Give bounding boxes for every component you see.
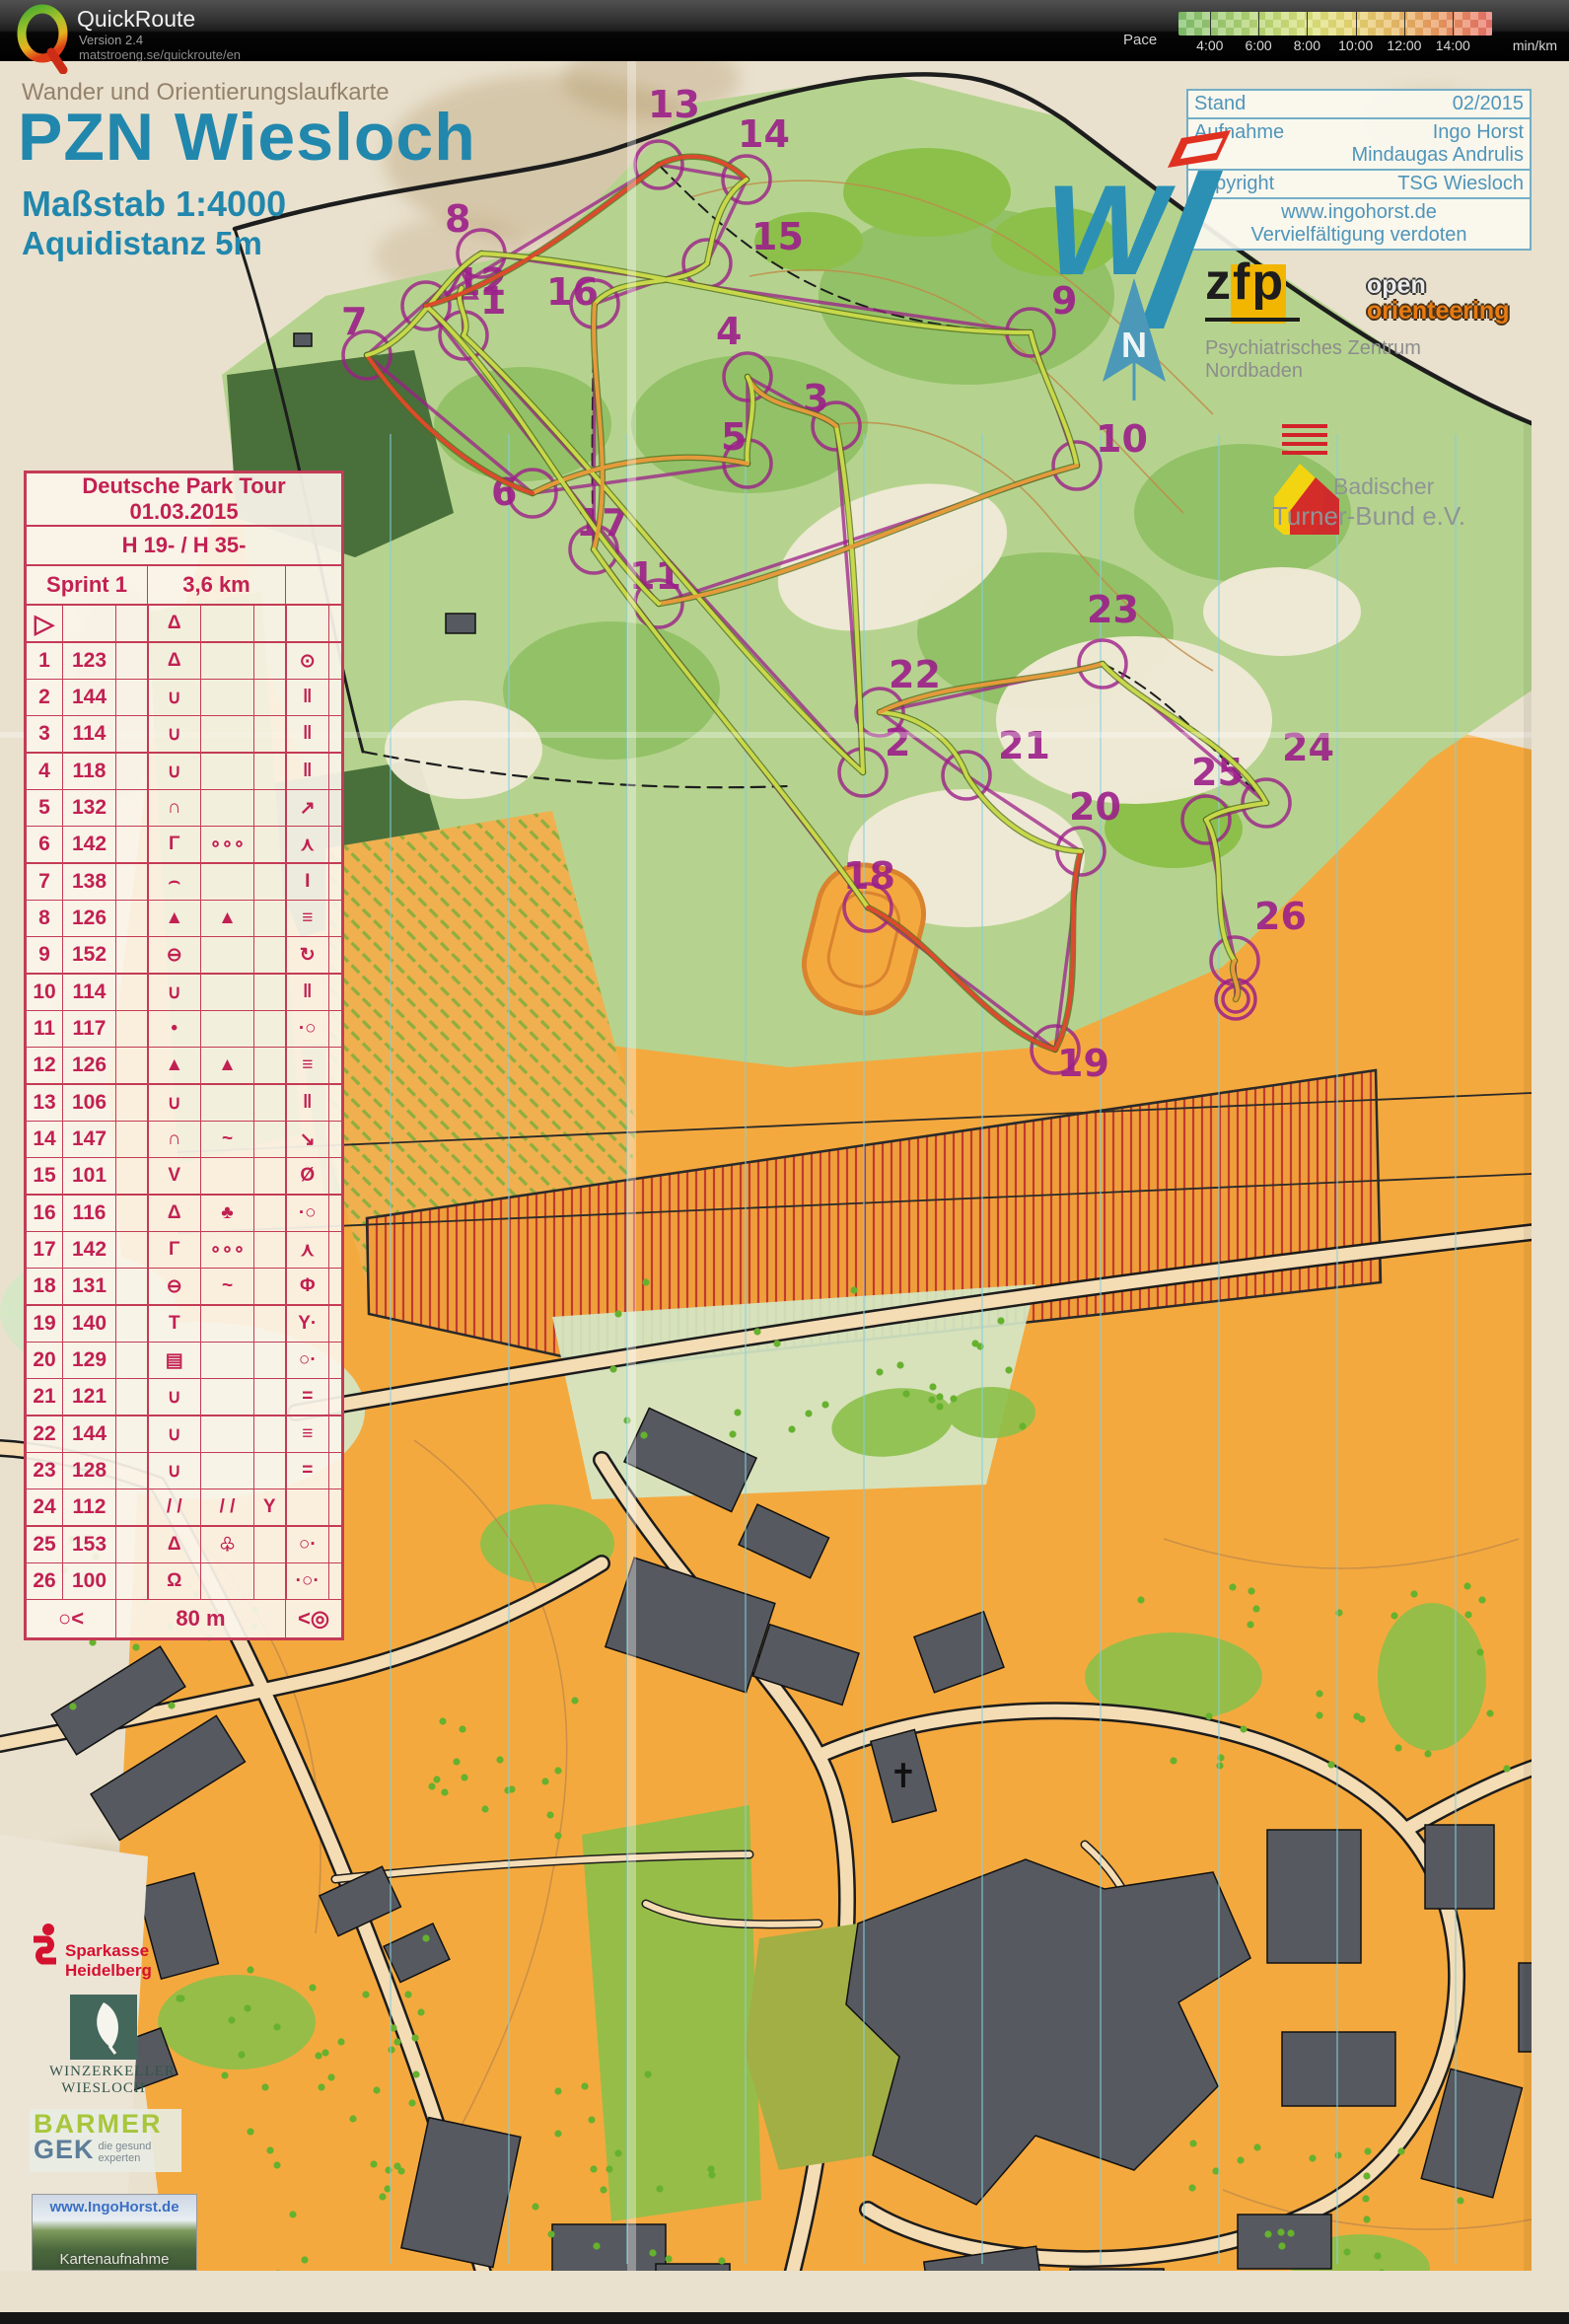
sheet-cell — [329, 901, 343, 937]
control-number-cell: 12 — [26, 1048, 63, 1085]
sheet-cell — [116, 974, 148, 1011]
control-number-cell: 20 — [26, 1343, 63, 1379]
sheet-course-length: 3,6 km — [148, 565, 286, 605]
control-code-cell: 147 — [63, 1122, 116, 1158]
symbol-f — [254, 1453, 286, 1489]
sheet-cell — [329, 1195, 343, 1232]
symbol-h: ⋏ — [286, 827, 329, 864]
symbol-e — [201, 680, 254, 716]
start-symbol: ▷ — [26, 605, 63, 642]
sheet-cell — [329, 716, 343, 754]
sheet-cell — [116, 1489, 148, 1527]
symbol-e — [201, 974, 254, 1011]
symbol-h: ○· — [286, 1343, 329, 1379]
symbol-f — [254, 753, 286, 790]
sheet-cell — [116, 1453, 148, 1489]
sheet-course-name: Sprint 1 — [26, 565, 148, 605]
control-number: 14 — [738, 112, 790, 156]
control-number: 26 — [1254, 895, 1307, 938]
symbol-e — [201, 1305, 254, 1343]
symbol-h: ·○· — [286, 1563, 329, 1600]
ingohorst-photo-badge: www.IngoHorst.de Kartenaufnahme — [32, 2194, 197, 2271]
symbol-d: ∪ — [148, 1379, 201, 1416]
pace-unit: min/km — [1513, 37, 1557, 53]
symbol-h: ≡ — [286, 1416, 329, 1453]
finish-symbol: ○< — [26, 1600, 116, 1639]
symbol-e — [201, 1563, 254, 1600]
sheet-cell — [329, 680, 343, 716]
control-number-cell: 10 — [26, 974, 63, 1011]
control-number: 8 — [445, 197, 470, 241]
control-number-cell: 25 — [26, 1526, 63, 1563]
symbol-f — [254, 1416, 286, 1453]
symbol-f — [254, 1563, 286, 1600]
control-number-cell: 7 — [26, 863, 63, 901]
symbol-d: V — [148, 1158, 201, 1196]
control-number: 20 — [1069, 785, 1121, 829]
map-scale: Maßstab 1:4000 — [22, 183, 286, 225]
symbol-h: ‖ — [286, 1084, 329, 1122]
sheet-cell — [63, 605, 116, 642]
control-code-cell: 142 — [63, 1232, 116, 1269]
symbol-f — [254, 1084, 286, 1122]
pace-tick — [1258, 12, 1259, 36]
control-number-cell: 13 — [26, 1084, 63, 1122]
sheet-cell — [116, 642, 148, 680]
control-number-cell: 26 — [26, 1563, 63, 1600]
pace-tick-label: 4:00 — [1196, 37, 1223, 53]
sheet-cell — [116, 1343, 148, 1379]
control-code-cell: 114 — [63, 974, 116, 1011]
pace-tick — [1404, 12, 1405, 36]
symbol-e — [201, 642, 254, 680]
control-description-table: Deutsche Park Tour 01.03.2015H 19- / H 3… — [24, 471, 344, 1640]
control-code-cell: 144 — [63, 680, 116, 716]
winzerkeller-logo: WINZERKELLERWIESLOCH — [49, 1995, 158, 2097]
title-bar: QuickRoute Version 2.4 matstroeng.se/qui… — [0, 0, 1569, 61]
symbol-f — [254, 1195, 286, 1232]
symbol-f — [254, 827, 286, 864]
control-number-cell: 23 — [26, 1453, 63, 1489]
sheet-cell — [329, 1379, 343, 1416]
symbol-d: Ω — [148, 1563, 201, 1600]
symbol-h: ↗ — [286, 790, 329, 827]
sheet-cell: Δ — [148, 605, 201, 642]
sheet-cell — [329, 753, 343, 790]
svg-text:✝: ✝ — [890, 1757, 918, 1796]
symbol-d: ∩ — [148, 790, 201, 827]
control-number-cell: 4 — [26, 753, 63, 790]
symbol-e — [201, 863, 254, 901]
pace-tick — [1210, 12, 1211, 36]
symbol-f — [254, 1158, 286, 1196]
symbol-h: ‖ — [286, 974, 329, 1011]
control-number-cell: 14 — [26, 1122, 63, 1158]
control-code-cell: 126 — [63, 1048, 116, 1085]
symbol-e — [201, 753, 254, 790]
sheet-cell — [329, 1526, 343, 1563]
control-number: 7 — [341, 300, 367, 343]
north-arrow-icon: N — [1097, 278, 1176, 401]
symbol-e: ~ — [201, 1122, 254, 1158]
control-code-cell: 140 — [63, 1305, 116, 1343]
control-number-cell: 1 — [26, 642, 63, 680]
symbol-f — [254, 1048, 286, 1085]
control-code-cell: 142 — [63, 827, 116, 864]
symbol-h: ≡ — [286, 1048, 329, 1085]
sheet-cell — [329, 790, 343, 827]
sheet-cell — [116, 1526, 148, 1563]
symbol-e — [201, 1453, 254, 1489]
control-code-cell: 126 — [63, 901, 116, 937]
sheet-cell — [116, 937, 148, 975]
control-number: 21 — [998, 724, 1050, 767]
badischer-turner-bund-logo: Badischer Turner-Bund e.V. — [1268, 416, 1544, 535]
symbol-f — [254, 680, 286, 716]
sheet-cell — [286, 565, 343, 605]
symbol-e — [201, 1084, 254, 1122]
sheet-cell — [116, 1305, 148, 1343]
control-number-cell: 9 — [26, 937, 63, 975]
symbol-e — [201, 716, 254, 754]
control-code-cell: 132 — [63, 790, 116, 827]
sheet-cell — [329, 937, 343, 975]
symbol-f — [254, 1526, 286, 1563]
symbol-f — [254, 716, 286, 754]
ingohorst-caption: Kartenaufnahme — [33, 2251, 196, 2268]
control-code-cell: 128 — [63, 1453, 116, 1489]
symbol-e — [201, 1416, 254, 1453]
control-code-cell: 129 — [63, 1343, 116, 1379]
symbol-d: ∪ — [148, 1416, 201, 1453]
symbol-d: ∪ — [148, 974, 201, 1011]
symbol-h: ↘ — [286, 1122, 329, 1158]
sheet-cell — [116, 1379, 148, 1416]
app-version: Version 2.4 — [79, 33, 143, 47]
sheet-cell — [116, 1011, 148, 1048]
control-number-cell: 5 — [26, 790, 63, 827]
control-number-cell: 3 — [26, 716, 63, 754]
quickroute-logo-icon — [14, 3, 71, 74]
pace-gradient-bar — [1178, 12, 1492, 36]
symbol-f: Y — [254, 1489, 286, 1527]
pace-tick-label: 12:00 — [1387, 37, 1421, 53]
symbol-h: ·○ — [286, 1011, 329, 1048]
symbol-h: ‖ — [286, 716, 329, 754]
control-number-cell: 22 — [26, 1416, 63, 1453]
control-number-cell: 2 — [26, 680, 63, 716]
pace-tick-label: 8:00 — [1294, 37, 1320, 53]
control-number-cell: 8 — [26, 901, 63, 937]
symbol-e: ∘∘∘ — [201, 1232, 254, 1269]
control-code-cell: 116 — [63, 1195, 116, 1232]
pzn-nordbaden-label: Psychiatrisches ZentrumNordbaden — [1205, 337, 1421, 383]
symbol-f — [254, 1269, 286, 1306]
control-code-cell: 152 — [63, 937, 116, 975]
symbol-h: ⋏ — [286, 1232, 329, 1269]
symbol-e — [201, 937, 254, 975]
sheet-cell — [329, 1011, 343, 1048]
symbol-d: ∪ — [148, 716, 201, 754]
symbol-e: ~ — [201, 1269, 254, 1306]
control-code-cell: 112 — [63, 1489, 116, 1527]
control-number-cell: 11 — [26, 1011, 63, 1048]
pace-label: Pace — [1123, 32, 1157, 48]
info-stand-value: 02/2015 — [1453, 93, 1524, 115]
symbol-h: ≡ — [286, 901, 329, 937]
sheet-cell — [329, 827, 343, 864]
symbol-e — [201, 790, 254, 827]
control-number: 18 — [843, 854, 895, 898]
info-aufnahme-value: Ingo HorstMindaugas Andrulis — [1351, 121, 1524, 167]
sheet-cell — [329, 1453, 343, 1489]
sheet-cell — [329, 1122, 343, 1158]
sheet-cell — [116, 901, 148, 937]
sheet-cell — [286, 605, 329, 642]
finish-symbol: <◎ — [286, 1600, 343, 1639]
symbol-f — [254, 1232, 286, 1269]
symbol-d: ∪ — [148, 680, 201, 716]
control-number: 19 — [1057, 1042, 1109, 1085]
symbol-d: ▤ — [148, 1343, 201, 1379]
symbol-h: ↻ — [286, 937, 329, 975]
symbol-f — [254, 1343, 286, 1379]
control-code-cell: 153 — [63, 1526, 116, 1563]
symbol-d: Γ — [148, 827, 201, 864]
symbol-h: Ø — [286, 1158, 329, 1196]
symbol-e: ♣ — [201, 1195, 254, 1232]
sheet-classes: H 19- / H 35- — [26, 526, 343, 565]
symbol-h: ‖ — [286, 680, 329, 716]
control-code-cell: 106 — [63, 1084, 116, 1122]
control-description-sheet: Deutsche Park Tour 01.03.2015H 19- / H 3… — [24, 471, 341, 1640]
symbol-h — [286, 1489, 329, 1527]
control-number-cell: 15 — [26, 1158, 63, 1196]
pace-tick-labels: 4:006:008:0010:0012:0014:00 — [1178, 37, 1492, 57]
pace-tick-label: 10:00 — [1338, 37, 1373, 53]
sheet-cell — [329, 605, 343, 642]
symbol-f — [254, 937, 286, 975]
control-number: 13 — [648, 83, 700, 126]
ingohorst-url[interactable]: www.IngoHorst.de — [33, 2199, 196, 2215]
control-number-cell: 17 — [26, 1232, 63, 1269]
symbol-f — [254, 1122, 286, 1158]
sheet-cell — [329, 863, 343, 901]
sheet-cell — [329, 1305, 343, 1343]
app-title: QuickRoute — [77, 6, 195, 33]
symbol-h: I — [286, 863, 329, 901]
info-copyright-value: TSG Wiesloch — [1397, 173, 1524, 195]
zfp-logo: zfp — [1205, 262, 1323, 331]
sheet-cell — [116, 605, 148, 642]
svg-text:N: N — [1121, 325, 1147, 365]
symbol-d: ∪ — [148, 753, 201, 790]
sheet-cell — [201, 605, 254, 642]
symbol-e — [201, 1011, 254, 1048]
control-code-cell: 138 — [63, 863, 116, 901]
sparkasse-logo: SparkasseHeidelberg — [24, 1922, 172, 1970]
symbol-d: • — [148, 1011, 201, 1048]
symbol-d: ∪ — [148, 1453, 201, 1489]
sheet-cell — [116, 753, 148, 790]
control-number-cell: 24 — [26, 1489, 63, 1527]
control-number: 5 — [721, 415, 747, 459]
pace-tick — [1356, 12, 1357, 36]
control-code-cell: 118 — [63, 753, 116, 790]
open-orienteering-logo: open orienteering — [1367, 272, 1509, 324]
sheet-cell — [329, 1343, 343, 1379]
sheet-cell — [116, 1158, 148, 1196]
control-number-cell: 21 — [26, 1379, 63, 1416]
sheet-cell — [116, 1084, 148, 1122]
sheet-cell — [329, 974, 343, 1011]
sheet-cell — [116, 1195, 148, 1232]
symbol-d: ⊖ — [148, 1269, 201, 1306]
sheet-cell — [116, 680, 148, 716]
symbol-d: Γ — [148, 1232, 201, 1269]
sheet-cell — [329, 642, 343, 680]
control-number: 16 — [546, 270, 599, 314]
symbol-d: / / — [148, 1489, 201, 1527]
control-number-cell: 6 — [26, 827, 63, 864]
quickroute-window: ✝ 12345678910111213141516171819202122232… — [0, 0, 1569, 2324]
symbol-d: ∩ — [148, 1122, 201, 1158]
symbol-f — [254, 1305, 286, 1343]
symbol-e — [201, 1343, 254, 1379]
symbol-e — [201, 1379, 254, 1416]
symbol-d: ∪ — [148, 1084, 201, 1122]
symbol-f — [254, 790, 286, 827]
sheet-cell — [116, 1416, 148, 1453]
symbol-e: / / — [201, 1489, 254, 1527]
control-number-cell: 18 — [26, 1269, 63, 1306]
sparkasse-s-icon — [24, 1922, 61, 1965]
sheet-cell — [329, 1084, 343, 1122]
sheet-cell — [254, 605, 286, 642]
sheet-cell — [116, 1269, 148, 1306]
symbol-d: ⌢ — [148, 863, 201, 901]
symbol-h: = — [286, 1379, 329, 1416]
control-code-cell: 114 — [63, 716, 116, 754]
symbol-d: Δ — [148, 1526, 201, 1563]
control-number: 25 — [1191, 751, 1244, 794]
symbol-d: ⊖ — [148, 937, 201, 975]
sheet-cell — [116, 1563, 148, 1600]
symbol-f — [254, 642, 286, 680]
control-code-cell: 117 — [63, 1011, 116, 1048]
control-number: 11 — [629, 554, 681, 598]
symbol-h: ○· — [286, 1526, 329, 1563]
control-code-cell: 100 — [63, 1563, 116, 1600]
control-code-cell: 101 — [63, 1158, 116, 1196]
symbol-e: ♧ — [201, 1526, 254, 1563]
sheet-cell — [116, 827, 148, 864]
control-code-cell: 144 — [63, 1416, 116, 1453]
symbol-e: ▲ — [201, 901, 254, 937]
symbol-e: ▲ — [201, 1048, 254, 1085]
sheet-cell — [329, 1563, 343, 1600]
control-code-cell: 121 — [63, 1379, 116, 1416]
barmer-gek-logo: BARMER GEKdie gesundexperten — [30, 2109, 181, 2172]
symbol-d: Δ — [148, 642, 201, 680]
control-number: 10 — [1096, 417, 1148, 461]
control-code-cell: 123 — [63, 642, 116, 680]
symbol-d: Δ — [148, 1195, 201, 1232]
sheet-finish-distance: 80 m — [116, 1600, 286, 1639]
sheet-cell — [116, 1048, 148, 1085]
sheet-cell — [116, 1122, 148, 1158]
control-number: 4 — [716, 310, 742, 353]
sheet-cell — [116, 716, 148, 754]
symbol-d: T — [148, 1305, 201, 1343]
map-title: PZN Wiesloch — [18, 99, 476, 176]
control-number: 22 — [889, 653, 941, 696]
symbol-h: ·○ — [286, 1195, 329, 1232]
symbol-h: Y· — [286, 1305, 329, 1343]
sheet-cell — [116, 1232, 148, 1269]
map-equidistance: Aquidistanz 5m — [22, 225, 262, 262]
sheet-cell — [329, 1416, 343, 1453]
sheet-cell — [116, 790, 148, 827]
symbol-h: Φ — [286, 1269, 329, 1306]
app-url[interactable]: matstroeng.se/quickroute/en — [79, 47, 241, 62]
sheet-cell — [329, 1269, 343, 1306]
pace-tick — [1307, 12, 1308, 36]
sheet-title: Deutsche Park Tour 01.03.2015 — [26, 472, 343, 527]
control-number: 23 — [1087, 588, 1139, 631]
sheet-cell — [329, 1489, 343, 1527]
symbol-f — [254, 974, 286, 1011]
sheet-cell — [116, 863, 148, 901]
pace-tick-label: 14:00 — [1436, 37, 1470, 53]
symbol-f — [254, 863, 286, 901]
symbol-h: ‖ — [286, 753, 329, 790]
winzerkeller-leaf-icon — [70, 1995, 137, 2060]
control-number-cell: 16 — [26, 1195, 63, 1232]
pace-tick — [1453, 12, 1454, 36]
sheet-cell — [329, 1232, 343, 1269]
symbol-d: ▲ — [148, 1048, 201, 1085]
control-number-cell: 19 — [26, 1305, 63, 1343]
control-number: 15 — [751, 215, 804, 258]
symbol-h: ⊙ — [286, 642, 329, 680]
symbol-d: ▲ — [148, 901, 201, 937]
sheet-cell — [329, 1048, 343, 1085]
info-footer: www.ingohorst.deVervielfältigung verdote… — [1194, 201, 1524, 247]
symbol-e: ∘∘∘ — [201, 827, 254, 864]
symbol-f — [254, 1379, 286, 1416]
pace-tick-label: 6:00 — [1245, 37, 1271, 53]
symbol-h: = — [286, 1453, 329, 1489]
control-code-cell: 131 — [63, 1269, 116, 1306]
sheet-cell — [329, 1158, 343, 1196]
pace-legend: Pace 4:006:008:0010:0012:0014:00 min/km — [1123, 0, 1557, 61]
symbol-f — [254, 901, 286, 937]
symbol-f — [254, 1011, 286, 1048]
symbol-e — [201, 1158, 254, 1196]
